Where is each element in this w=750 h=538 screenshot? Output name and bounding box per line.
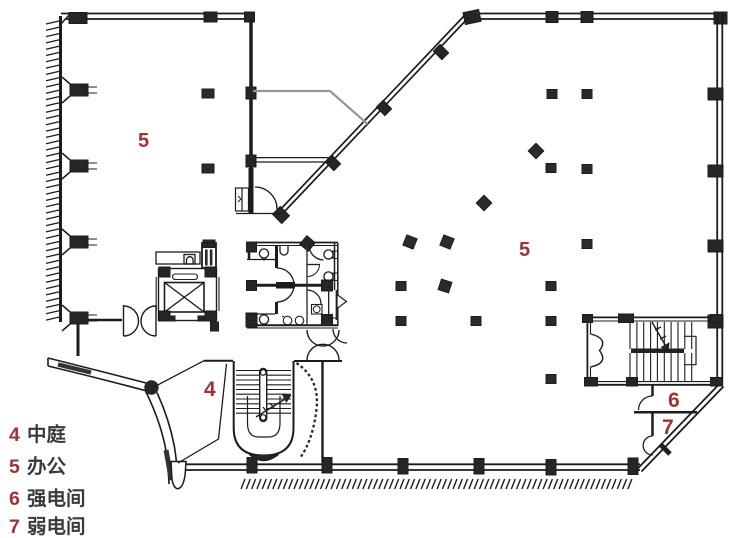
svg-text:4: 4 xyxy=(204,378,216,401)
svg-text:7: 7 xyxy=(9,516,20,538)
svg-text:7: 7 xyxy=(662,416,674,439)
svg-text:弱电间: 弱电间 xyxy=(27,515,86,538)
svg-text:5: 5 xyxy=(138,130,149,152)
svg-text:5: 5 xyxy=(519,239,530,261)
svg-text:强电间: 强电间 xyxy=(27,487,86,510)
svg-text:中庭: 中庭 xyxy=(27,423,67,446)
svg-text:4: 4 xyxy=(9,424,20,446)
svg-text:办公: 办公 xyxy=(27,455,67,478)
svg-text:6: 6 xyxy=(9,488,20,510)
svg-text:6: 6 xyxy=(668,389,680,412)
svg-text:5: 5 xyxy=(9,456,20,478)
